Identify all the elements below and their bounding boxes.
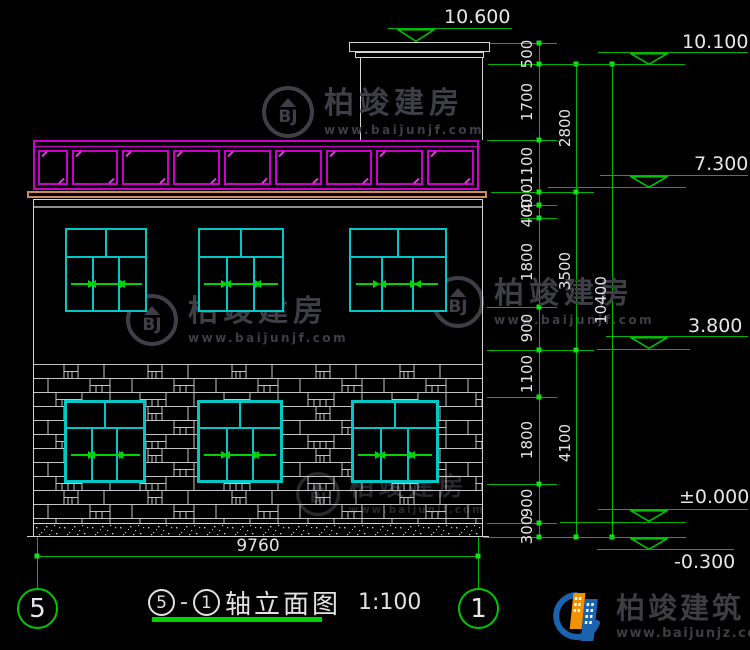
dim-extension-line bbox=[37, 537, 38, 589]
dim-tick bbox=[487, 140, 557, 141]
dim-label: 1100 bbox=[518, 147, 536, 185]
dim-label: 1800 bbox=[518, 421, 536, 459]
stair-bulkhead-roof-slab bbox=[349, 42, 490, 52]
slide-arrow bbox=[204, 454, 222, 456]
dim-label: 1700 bbox=[518, 83, 536, 121]
slide-arrow bbox=[122, 454, 140, 456]
elevation-label-zero: ±0.000 bbox=[679, 486, 749, 508]
dim-label: 1100 bbox=[518, 355, 536, 393]
brand-name: 柏竣建筑 bbox=[616, 594, 750, 623]
dim-label: 400 bbox=[518, 199, 536, 228]
railing-panel bbox=[427, 150, 474, 185]
window-2f-right bbox=[349, 228, 447, 312]
brand-website: www.baijunjz.com bbox=[616, 626, 750, 641]
floor-line bbox=[34, 206, 482, 208]
watermark: BJ 柏竣建房 www.baijunjf.com bbox=[262, 86, 484, 138]
dim-extension-line bbox=[478, 537, 479, 589]
watermark-logo-icon: BJ bbox=[262, 86, 314, 138]
elevation-label-f2top: 7.300 bbox=[694, 153, 748, 175]
railing-panel bbox=[275, 150, 322, 185]
elevation-triangle-icon bbox=[630, 337, 668, 349]
railing-panel bbox=[72, 150, 119, 185]
railing-top-rail bbox=[35, 146, 477, 147]
slide-arrow bbox=[356, 283, 374, 285]
dim-label: 3500 bbox=[556, 252, 574, 290]
slide-arrow bbox=[414, 454, 432, 456]
roof-eave-band bbox=[27, 191, 487, 198]
railing-panel bbox=[224, 150, 271, 185]
elevation-triangle-icon bbox=[397, 29, 435, 42]
dim-label: 1800 bbox=[518, 243, 536, 281]
elevation-label-f2: 3.800 bbox=[688, 315, 742, 337]
dim-label: 10400 bbox=[592, 276, 610, 324]
railing-panel bbox=[376, 150, 423, 185]
slide-arrow bbox=[420, 283, 438, 285]
elevation-triangle-icon bbox=[630, 176, 668, 188]
window-1f-right bbox=[351, 400, 439, 483]
dim-label: 500 bbox=[518, 40, 536, 69]
brand-building-icon bbox=[546, 588, 608, 646]
stair-bulkhead-roof-edge bbox=[355, 52, 484, 58]
slide-arrow bbox=[260, 283, 278, 285]
elevation-label-ground: -0.300 bbox=[674, 551, 735, 573]
slide-arrow bbox=[71, 283, 89, 285]
axis-bubble-5: 5 bbox=[17, 588, 58, 629]
slide-arrow bbox=[358, 454, 376, 456]
dim-label: 300 bbox=[518, 516, 536, 545]
title-scale: 1:100 bbox=[358, 590, 421, 615]
drawing-title: 5 - 1 轴立面图 1:100 bbox=[148, 584, 421, 621]
elevation-label-bulkhead: 10.600 bbox=[444, 6, 510, 28]
railing-panel bbox=[173, 150, 220, 185]
elevation-triangle-icon bbox=[630, 538, 668, 550]
elevation-label-roof: 10.100 bbox=[682, 31, 748, 53]
elevation-triangle-icon bbox=[630, 510, 668, 522]
cad-elevation-drawing: BJ 柏竣建房 www.baijunjf.com BJ 柏竣建房 www.bai… bbox=[0, 0, 750, 650]
dim-label: 900 bbox=[518, 489, 536, 518]
title-axis-circle: 5 bbox=[148, 589, 175, 616]
brand-logo: 柏竣建筑 www.baijunjz.com bbox=[546, 588, 750, 646]
title-underline bbox=[152, 617, 322, 622]
window-1f-center bbox=[197, 400, 283, 483]
slide-arrow bbox=[258, 454, 276, 456]
railing-panel bbox=[122, 150, 169, 185]
window-1f-left bbox=[64, 400, 146, 483]
slide-arrow bbox=[124, 283, 142, 285]
railing-panel bbox=[326, 150, 373, 185]
title-text: 轴立面图 bbox=[225, 584, 341, 621]
slide-arrow bbox=[204, 283, 222, 285]
title-axis-circle: 1 bbox=[193, 589, 220, 616]
elevation-triangle-icon bbox=[630, 53, 668, 65]
dim-label: 4100 bbox=[556, 424, 574, 462]
plinth-stipple-band bbox=[34, 523, 482, 536]
slide-arrow bbox=[71, 454, 89, 456]
window-2f-center bbox=[198, 228, 284, 312]
dim-tick bbox=[487, 397, 557, 398]
window-2f-left bbox=[65, 228, 147, 312]
slide-arrow bbox=[230, 283, 256, 285]
railing-panel bbox=[38, 150, 68, 185]
slide-arrow bbox=[384, 454, 410, 456]
railing-panels bbox=[38, 150, 474, 185]
axis-bubble-1: 1 bbox=[458, 588, 499, 629]
dim-label: 900 bbox=[518, 314, 536, 343]
dim-line-width bbox=[37, 556, 478, 557]
slide-arrow bbox=[385, 283, 411, 285]
roof-railing bbox=[33, 140, 479, 190]
dim-label: 2800 bbox=[556, 109, 574, 147]
slide-arrow bbox=[229, 454, 255, 456]
dim-tick bbox=[487, 484, 557, 485]
dim-tick bbox=[491, 192, 594, 193]
dim-label-total-width: 9760 bbox=[236, 536, 279, 556]
